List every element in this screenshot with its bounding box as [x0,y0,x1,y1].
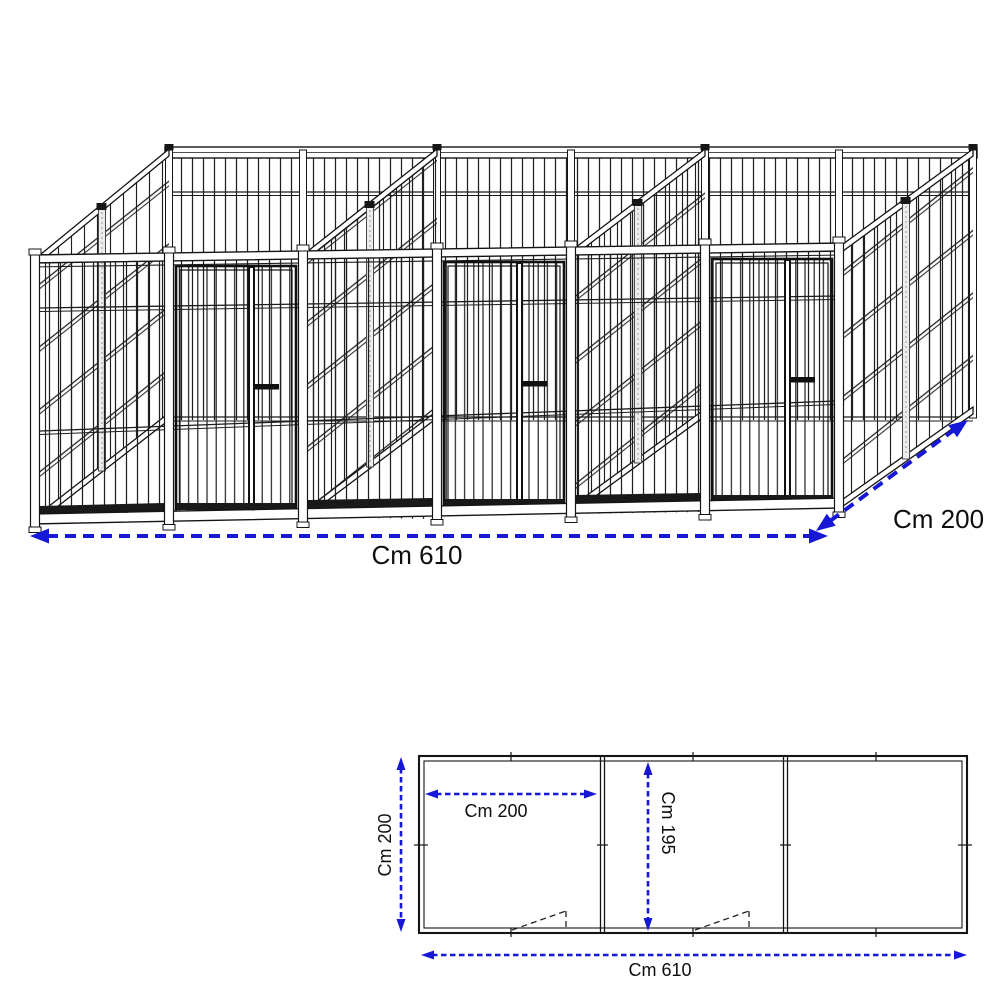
door-2 [444,262,564,508]
iso-total-width-label: Cm 610 [371,540,462,570]
door-lock-stile [249,267,254,511]
iso-depth-label: Cm 200 [893,504,984,534]
arrowhead-down-icon [397,919,406,932]
door-lock-stile [517,263,522,507]
arrowhead-left-icon [421,951,434,960]
arrowhead-right-icon [809,529,828,544]
arrowhead-right-icon [954,951,967,960]
front-mesh-panel-3 [576,252,700,514]
front-mesh-panel-1 [40,260,164,524]
plan-bay-width-label: Cm 200 [464,801,527,821]
arrowhead-up-icon [397,757,406,770]
plan-total-width-label: Cm 610 [628,960,691,980]
plan-view: Cm 200 Cm 200 Cm 195 Cm 610 [375,752,972,980]
dim-plan-side-depth: Cm 200 [375,757,406,932]
iso-view: Cm 610 Cm 200 [29,144,984,570]
plan-side-depth-label: Cm 200 [375,813,395,876]
door-1 [176,266,296,512]
kennel-technical-drawing: Cm 610 Cm 200 [0,0,1000,1000]
door-lock-stile [785,260,790,503]
plan-outer-wall [419,756,967,933]
door-3 [712,259,832,504]
front-face [29,237,845,533]
plan-bay-inner-depth-label: Cm 195 [658,791,678,854]
drawing-canvas: Cm 610 Cm 200 [0,0,1000,1000]
dim-iso-total-width: Cm 610 [30,529,828,571]
dim-plan-total-width: Cm 610 [421,951,967,981]
door-handle [791,377,815,383]
front-mesh-panel-2 [308,256,432,519]
door-handle [255,384,279,390]
door-handle [523,381,547,387]
